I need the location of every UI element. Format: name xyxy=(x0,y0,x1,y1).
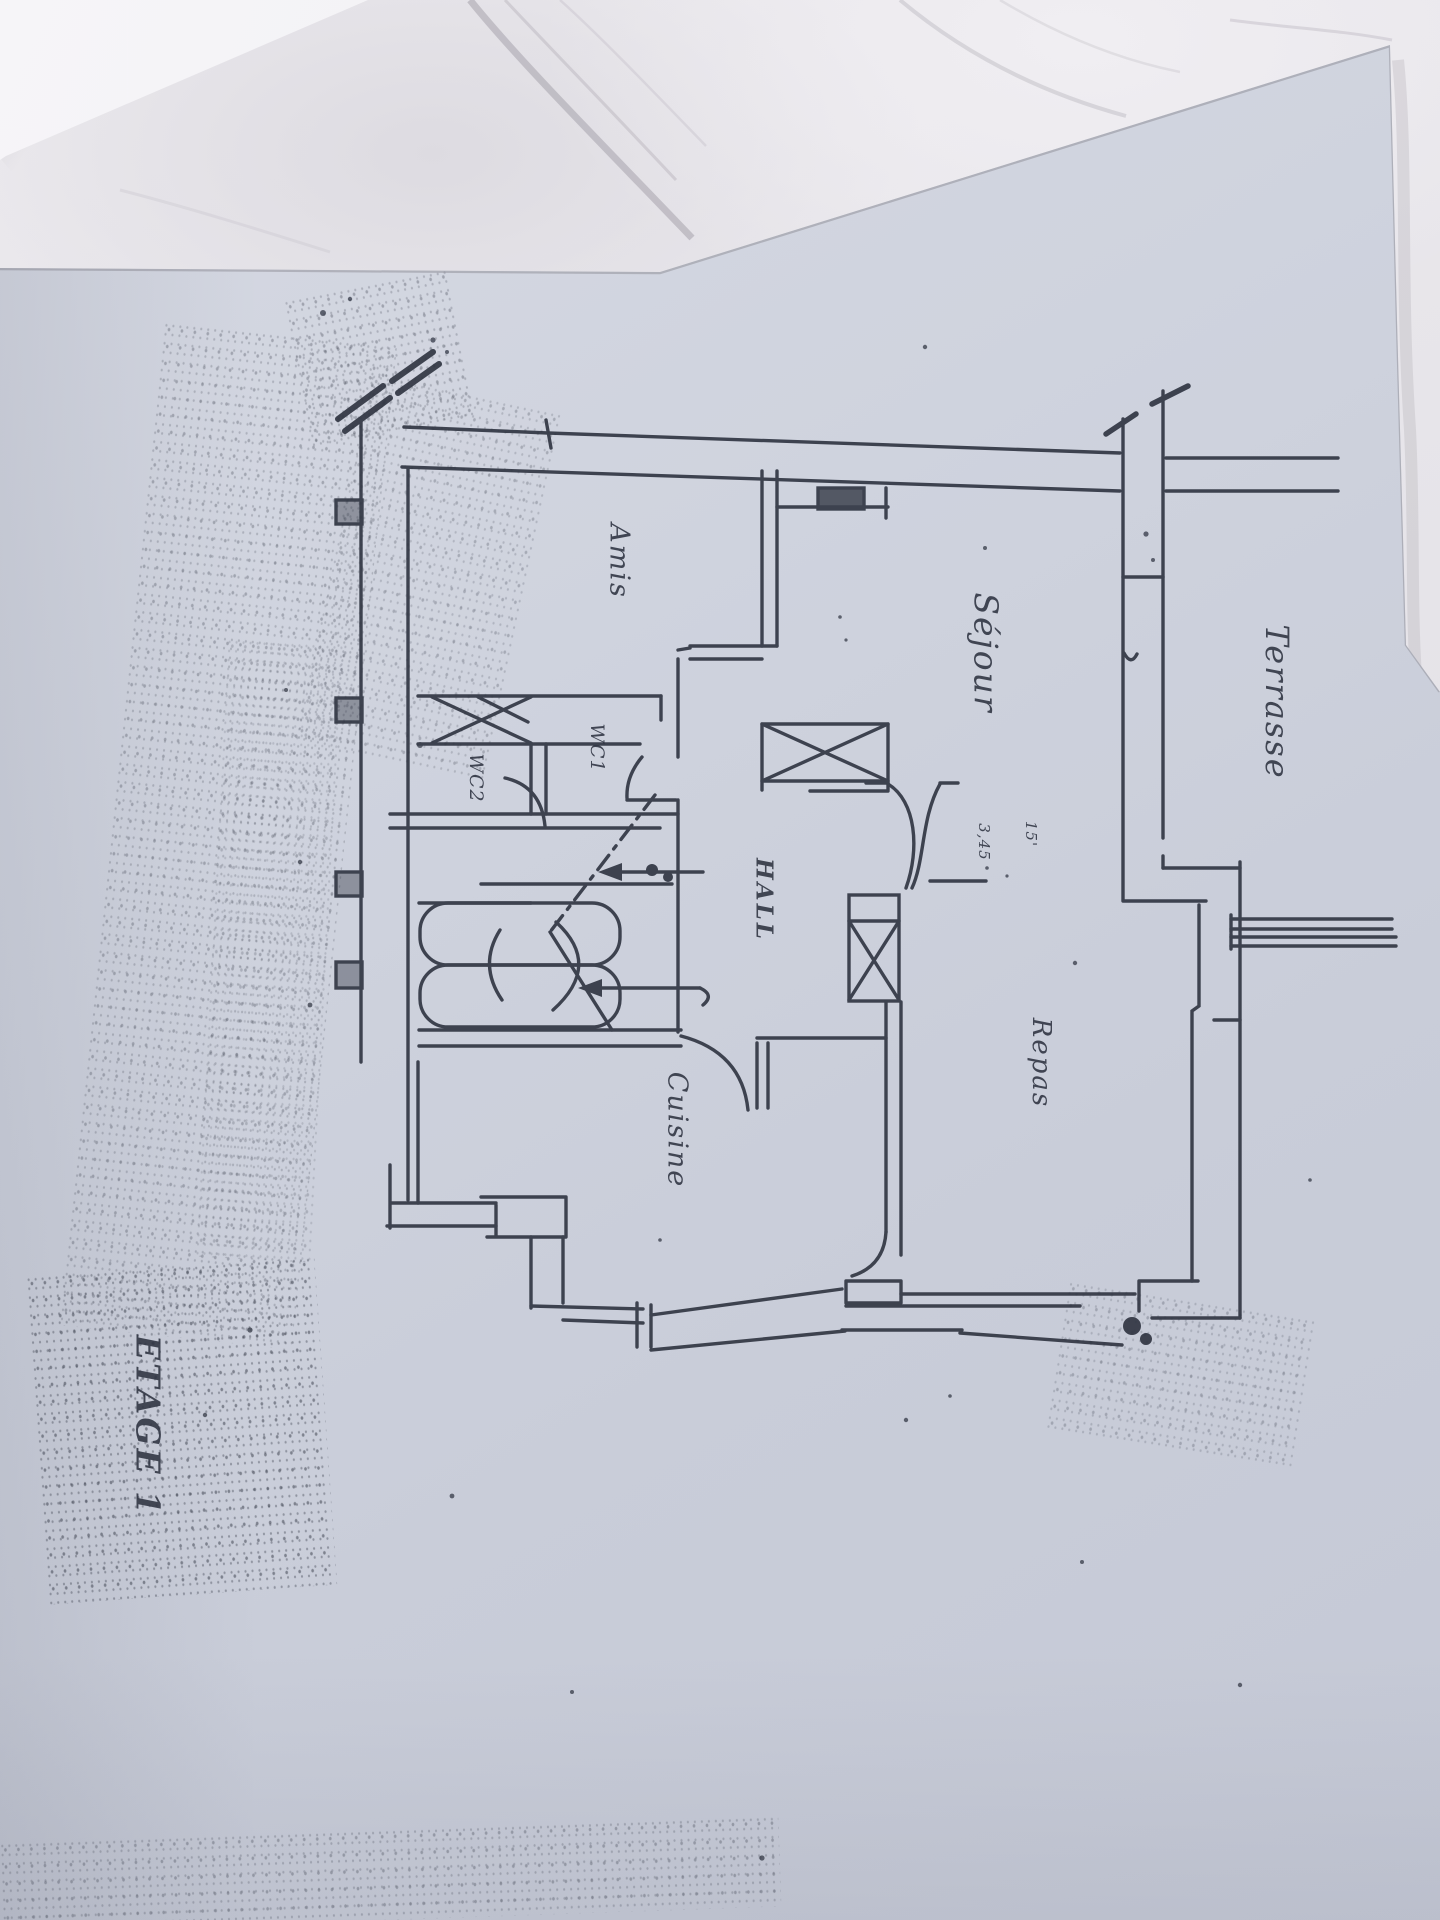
dimension-note-a: 15' xyxy=(1022,821,1040,847)
room-label-cuisine: Cuisine xyxy=(662,1072,693,1189)
room-label-repas: Repas xyxy=(1026,1018,1056,1108)
floorplan-drawing xyxy=(0,0,1440,1920)
dimension-note-b: 3,45 xyxy=(975,823,993,860)
floorplan-paper: Terrasse Séjour Amis HALL WC1 WC2 Cuisin… xyxy=(0,0,1440,1920)
photo-scene: Terrasse Séjour Amis HALL WC1 WC2 Cuisin… xyxy=(0,0,1440,1920)
room-label-hall: HALL xyxy=(751,858,778,942)
room-label-sejour: Séjour xyxy=(967,592,1006,713)
room-label-amis: Amis xyxy=(604,523,635,599)
room-label-wc1: WC1 xyxy=(586,723,608,772)
room-label-wc2: WC2 xyxy=(465,753,487,802)
room-label-terrasse: Terrasse xyxy=(1258,624,1296,779)
plan-title-etage-1: ETAGE 1 xyxy=(129,1335,168,1517)
